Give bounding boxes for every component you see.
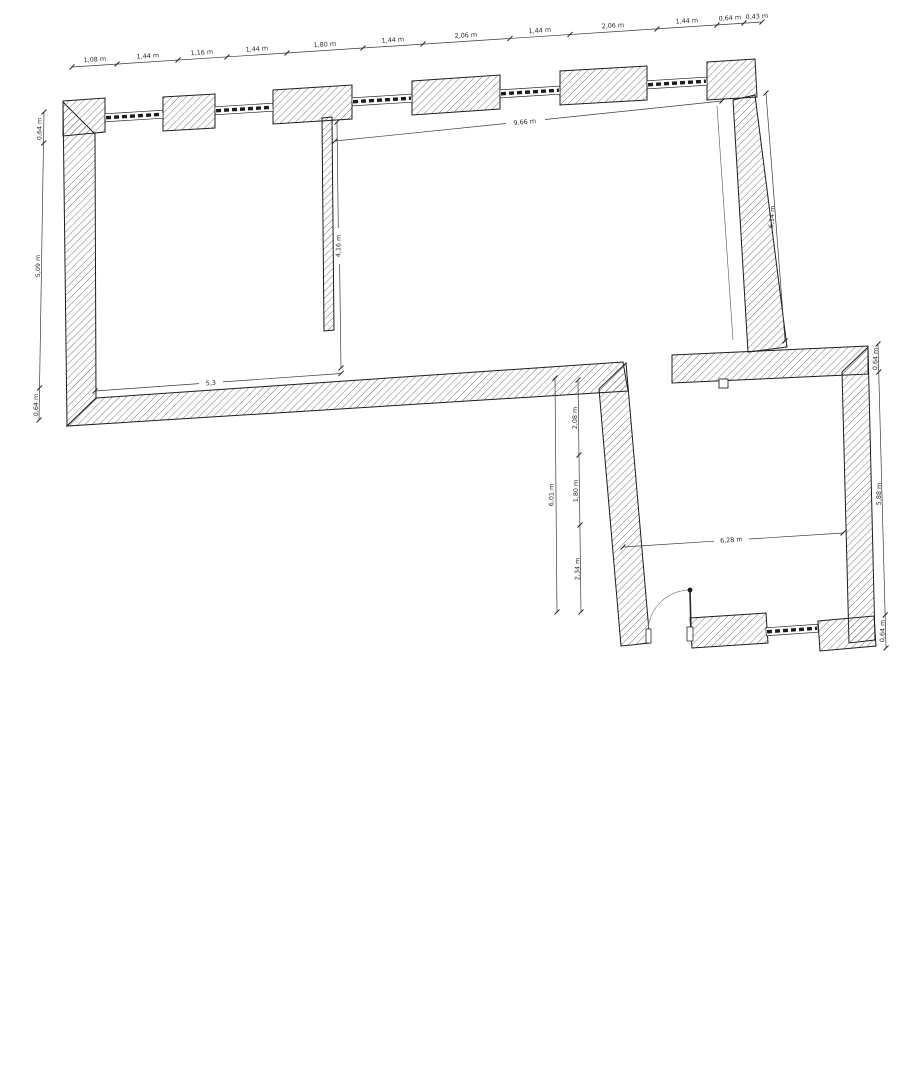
room2-bottom-left-wall xyxy=(690,613,768,648)
door-hinge-dot xyxy=(688,588,693,593)
dim-label-mid-3: 2,34 m xyxy=(573,558,581,581)
pier-2 xyxy=(163,94,215,131)
pier-top-right-corner xyxy=(707,59,757,100)
floor-plan-page: 1,08 m 1,44 m 1,16 m 1,44 m 1,80 m 1,44 … xyxy=(0,0,922,1080)
door-leaf xyxy=(690,590,691,632)
window-icon xyxy=(766,624,818,636)
left-dimension-chain: 0,64 m 5,09 m 0,64 m xyxy=(32,110,47,423)
dim-label-left-3: 0,64 m xyxy=(32,394,40,417)
interior-height-dimension: 4,16 m xyxy=(334,120,343,371)
dim-label-mid-1: 2,08 m xyxy=(571,407,579,430)
dim-label-top-11: 0,64 m xyxy=(718,13,741,22)
interior-partition-wall xyxy=(322,117,334,331)
walls xyxy=(63,59,876,651)
mid-vertical-wall xyxy=(599,363,650,646)
door-jamb-left xyxy=(646,629,651,643)
dim-label-left-2: 5,09 m xyxy=(34,255,42,278)
window-icon xyxy=(105,110,163,122)
pier-5 xyxy=(560,66,647,105)
main-bottom-wall xyxy=(67,362,628,426)
mid-dimension-chain: 2,08 m 1,80 m 2,34 m xyxy=(571,378,584,615)
main-right-wall xyxy=(733,95,787,352)
mid-overall-dimension: 6,01 m xyxy=(547,376,559,615)
room2-bottom-right-wall xyxy=(818,616,876,651)
pier-top-left-corner xyxy=(63,98,105,136)
dim-label-top-10: 1,44 m xyxy=(675,16,698,25)
dim-label-mid-overall: 6,01 m xyxy=(547,484,555,507)
dim-label-top-7: 2,06 m xyxy=(454,31,477,40)
dim-label-top-6: 1,44 m xyxy=(381,35,404,44)
dim-label-room2-right-2: 5,88 m xyxy=(875,483,884,506)
dim-label-top-1: 1,08 m xyxy=(83,55,106,64)
room2-right-wall xyxy=(842,347,875,643)
door-jamb-right xyxy=(687,627,693,641)
dim-label-interior-height: 4,16 m xyxy=(334,235,342,258)
dim-label-right-wall: 6,14 m xyxy=(767,205,777,228)
window-icon xyxy=(500,86,560,98)
room2-top-wall xyxy=(672,346,868,383)
dim-label-top-2: 1,44 m xyxy=(136,51,159,60)
interior-width-top-dimension: 9,66 m xyxy=(333,99,725,144)
dim-label-top-9: 2,06 m xyxy=(601,21,624,30)
dim-label-mid-2: 1,80 m xyxy=(572,480,580,503)
dim-label-top-12: 0,43 m xyxy=(745,12,768,21)
wall-fixture-box xyxy=(719,379,728,388)
interior-reference-line xyxy=(717,106,733,340)
dim-label-top-3: 1,16 m xyxy=(190,48,213,57)
dim-label-interior-width-bottom: 5,3 xyxy=(206,379,217,388)
door-swing-arc xyxy=(648,590,690,631)
floor-plan-canvas: 1,08 m 1,44 m 1,16 m 1,44 m 1,80 m 1,44 … xyxy=(0,0,922,1080)
dim-label-top-8: 1,44 m xyxy=(528,26,551,35)
room2-width-dimension: 6,28 m xyxy=(621,531,846,550)
top-dimension-chain: 1,08 m 1,44 m 1,16 m 1,44 m 1,80 m 1,44 … xyxy=(70,12,769,70)
pier-4 xyxy=(412,75,500,115)
dim-label-room2-width: 6,28 m xyxy=(720,535,743,544)
window-icon xyxy=(647,77,707,89)
dim-label-interior-width-top: 9,66 m xyxy=(513,117,536,127)
door xyxy=(646,588,693,643)
pier-3 xyxy=(273,85,352,124)
left-wall xyxy=(63,102,96,426)
dim-label-room2-right-3: 0,64 m xyxy=(878,620,887,643)
window-icon xyxy=(215,103,273,115)
dim-label-top-4: 1,44 m xyxy=(245,44,268,53)
dim-label-left-1: 0,64 m xyxy=(36,118,44,141)
dim-label-top-5: 1,80 m xyxy=(313,40,336,49)
dim-label-room2-right-1: 0,64 m xyxy=(871,348,880,371)
window-icon xyxy=(352,94,412,106)
